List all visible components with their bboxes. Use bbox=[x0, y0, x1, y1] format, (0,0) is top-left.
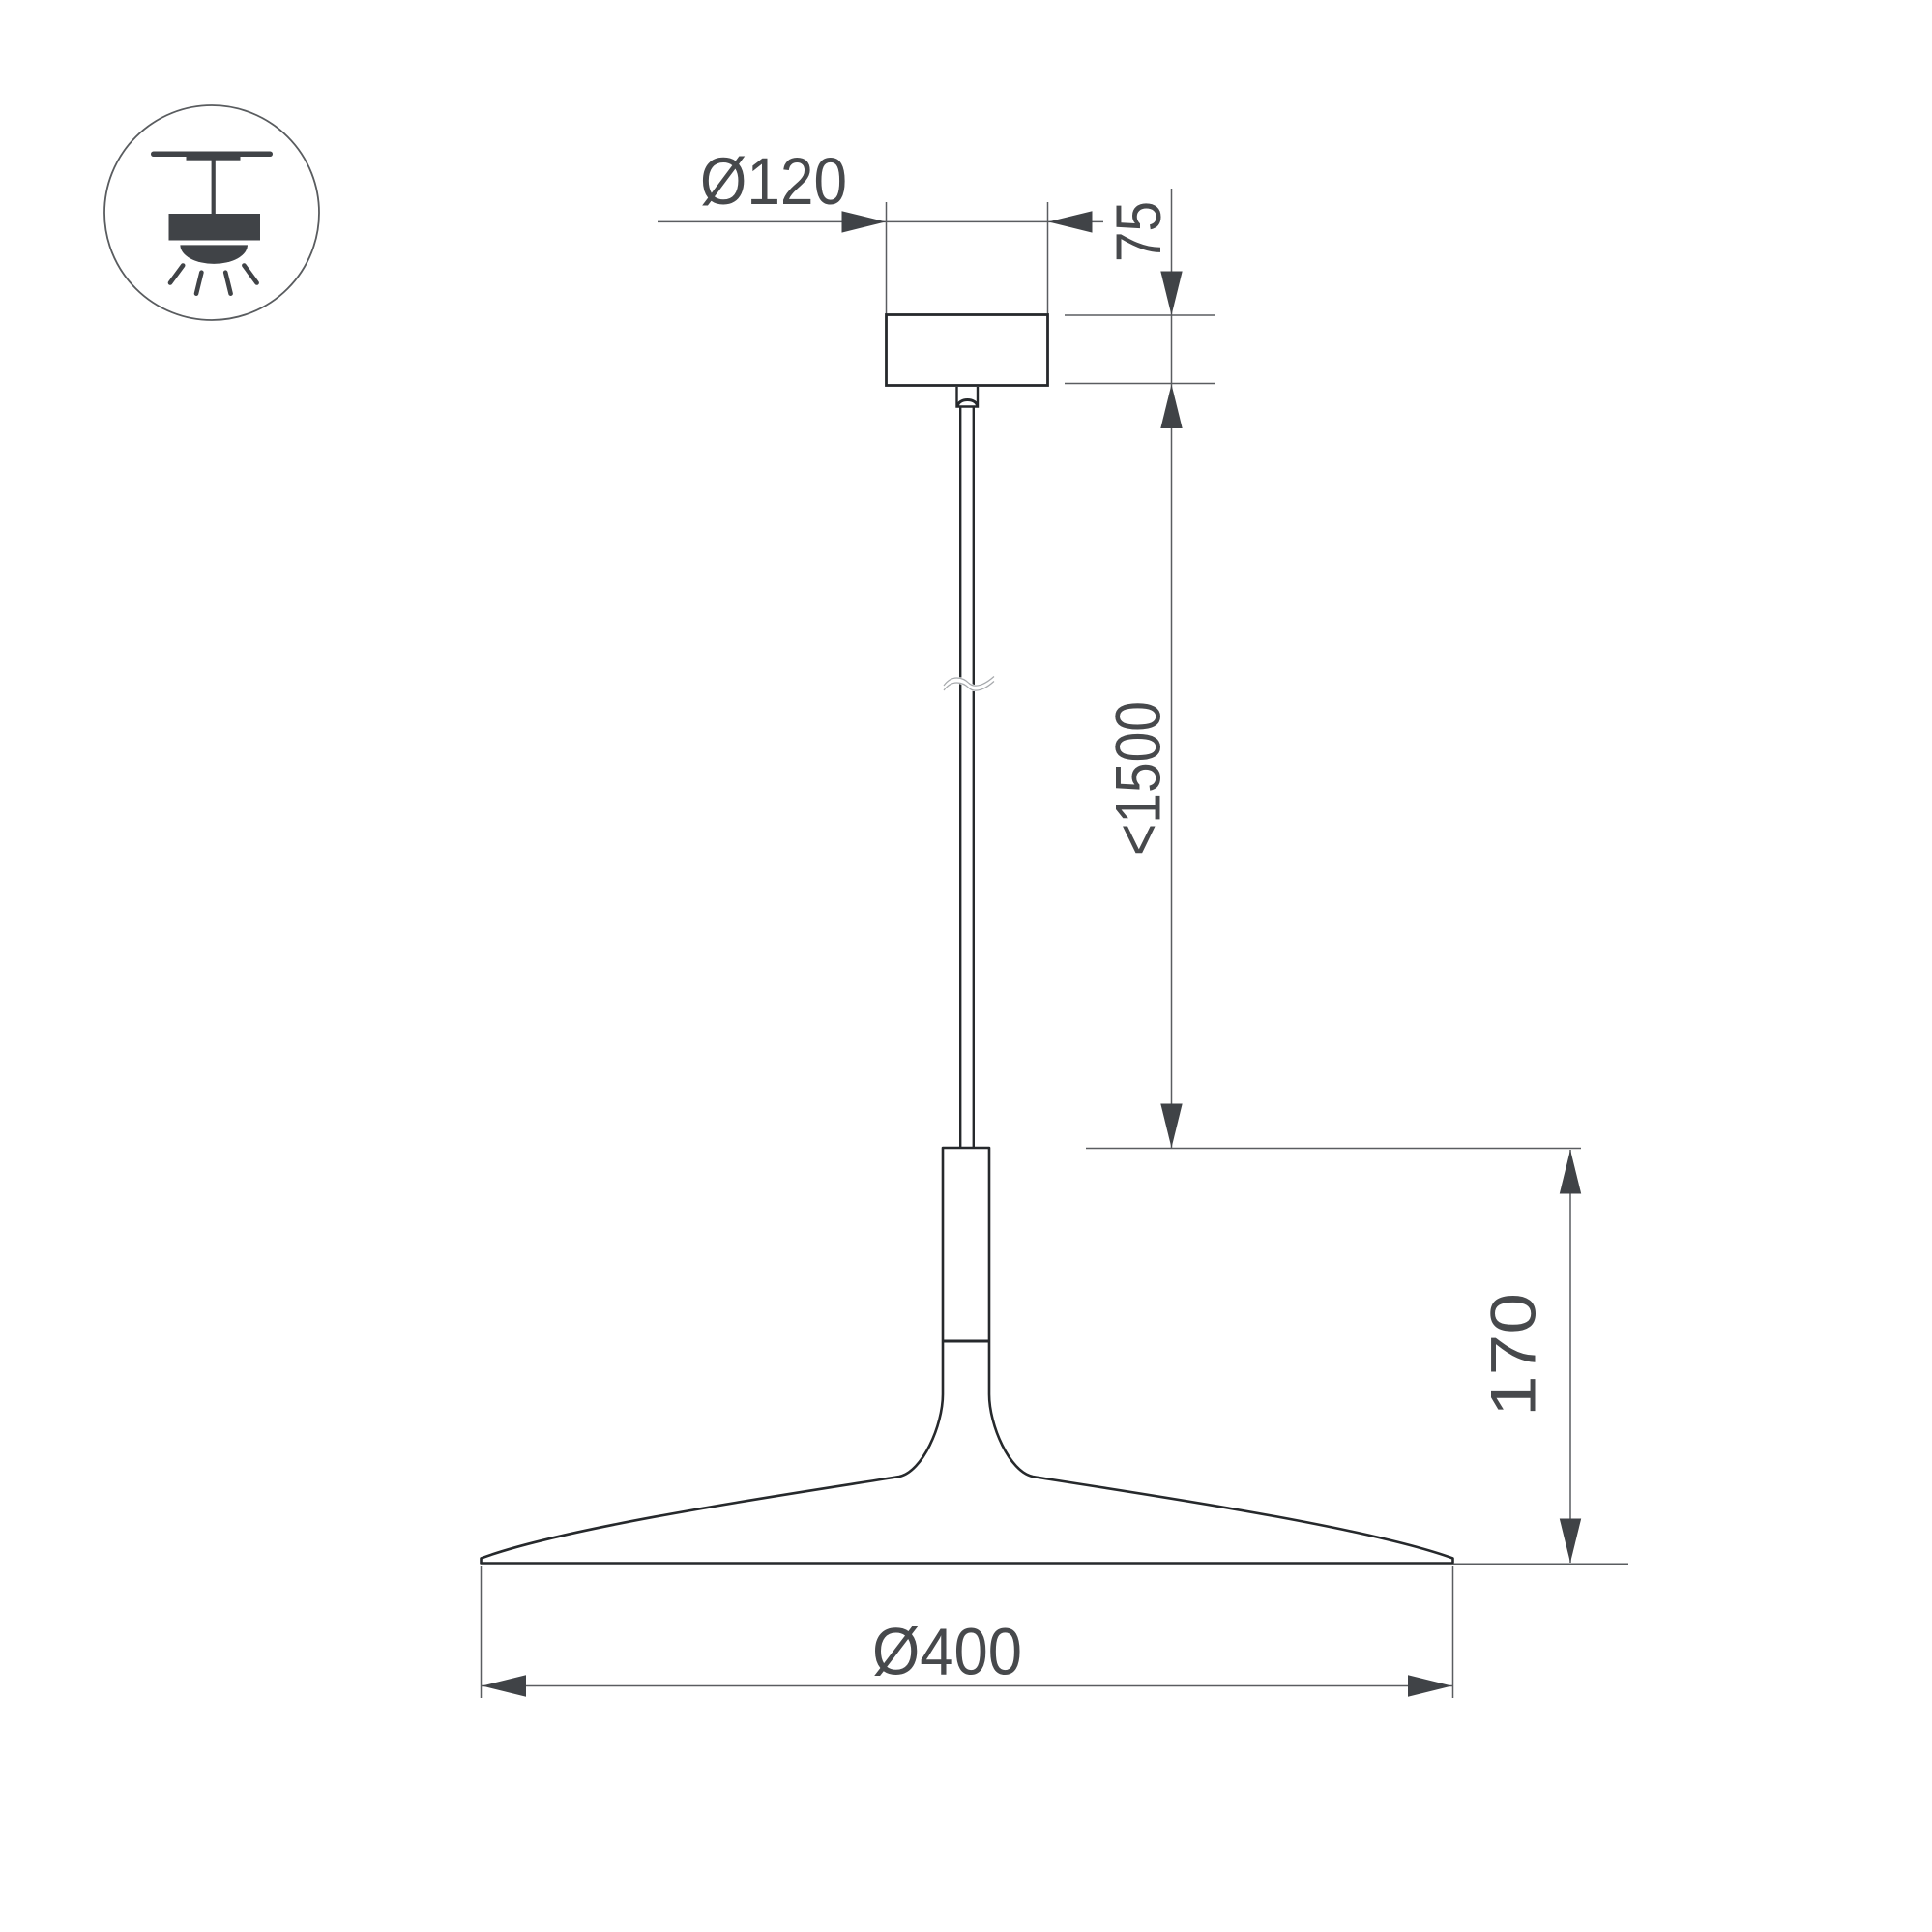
svg-text:<1500: <1500 bbox=[1102, 701, 1174, 856]
svg-text:Ø400: Ø400 bbox=[872, 1615, 1022, 1689]
svg-text:Ø120: Ø120 bbox=[700, 144, 847, 219]
svg-text:75: 75 bbox=[1102, 201, 1174, 262]
svg-text:170: 170 bbox=[1478, 1293, 1549, 1417]
